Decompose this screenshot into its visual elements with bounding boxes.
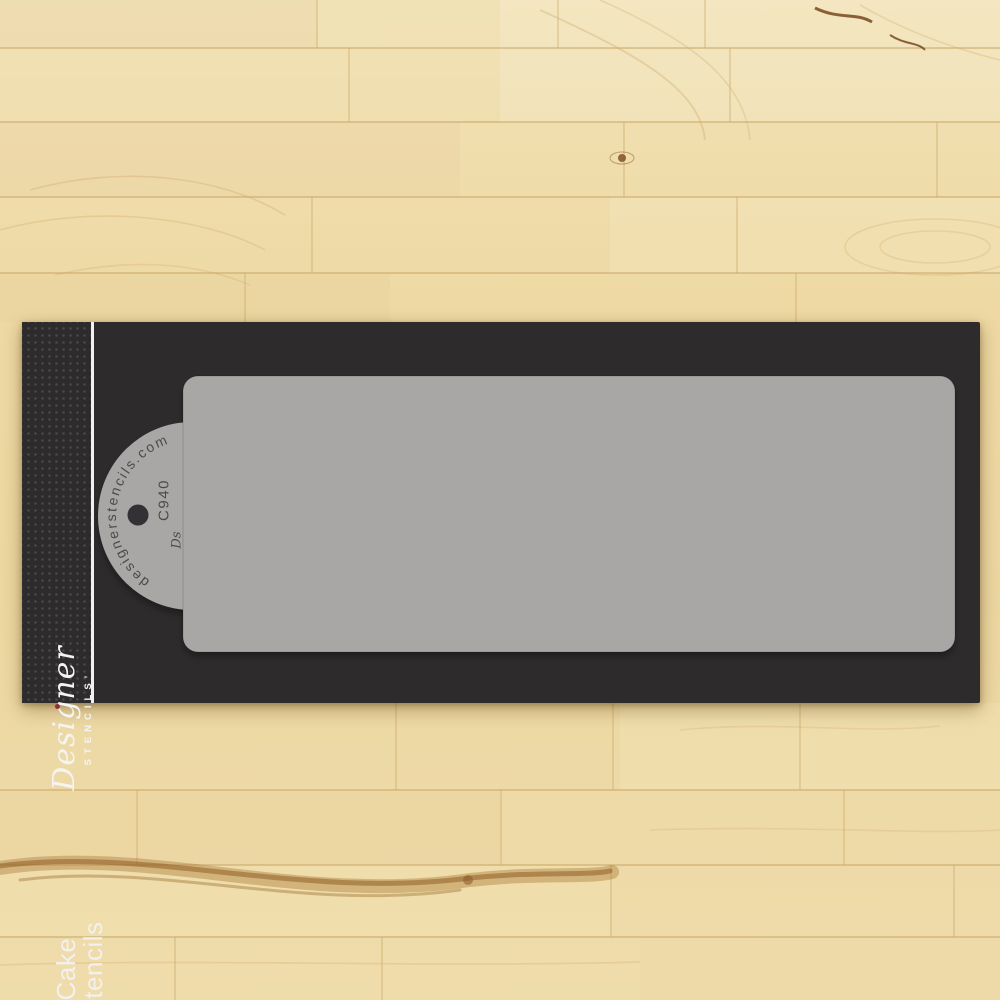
tab-code-text: C940 [156, 479, 173, 521]
tab-monogram: Ds [170, 531, 185, 549]
product-photo-scene: Designer STENCILS’ Cake Stencils [0, 0, 1000, 1000]
cake-stencil: designerstencils.com C940 Ds [0, 0, 1000, 1000]
stencil-sheet [183, 376, 955, 652]
hang-hole [128, 505, 149, 526]
